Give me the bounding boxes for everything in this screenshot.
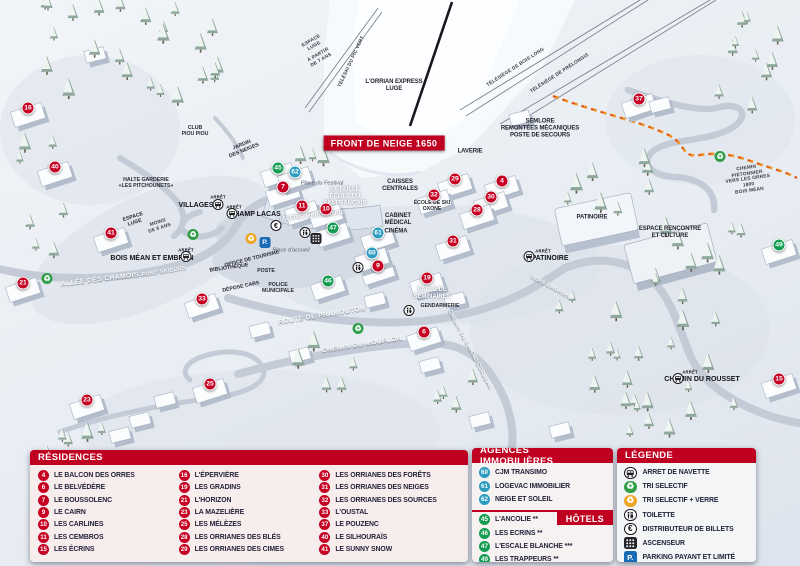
hotels-divider: HÔTELS [472,510,613,512]
number-badge: 7 [38,495,49,506]
item-label: LES ORRIANES DES FORÊTS [335,472,430,479]
map-marker-47: 47 [327,222,340,235]
map-marker-21: 21 [17,277,30,290]
item-label: LE BOUSSOLENC [54,497,112,504]
map-icon: ♻ [715,146,726,164]
map-marker-40: 40 [49,161,62,174]
list-item: 15LES ÉCRINS [38,544,179,556]
map-icon [673,370,684,388]
number-badge: 28 [179,532,190,543]
recycle-green-icon: ♻ [42,273,53,284]
number-badge: 62 [479,494,490,505]
legend-label: TRI SELECTIF [643,483,688,490]
recycle-green-icon: ♻ [353,323,364,334]
number-badge: 61 [479,481,490,492]
item-label: LA MAZELIÈRE [195,509,244,516]
map-marker-60: 60 [366,247,379,260]
legend-label: ARRET DE NAVETTE [643,469,710,476]
list-item: 31LES ORRIANES DES NEIGES [319,481,460,493]
item-label: LES ORRIANES DES NEIGES [335,484,428,491]
list-item: 40LE SILHOURAÏS [319,531,460,543]
parking-icon: P. [624,551,637,562]
number-badge: 60 [479,467,490,478]
recycle-green-icon: ♻ [715,151,726,162]
item-label: L'HORIZON [195,497,232,504]
legend-item: P.PARKING PAYANT ET LIMITÉ [624,551,749,562]
map-marker-6: 6 [418,326,431,339]
bus-icon [524,251,535,262]
front-de-neige-banner: FRONT DE NEIGE 1650 [324,136,445,151]
map-icon: € [271,215,282,233]
legende-header: LÉGENDE [617,448,756,463]
map-icon: ♻ [188,224,199,242]
legende-title: LÉGENDE [625,450,673,461]
map-marker-61: 61 [372,227,385,240]
legende-list: ARRET DE NAVETTE♻TRI SELECTIF♻TRI SELECT… [617,463,756,562]
item-label: LE SUNNY SNOW [335,546,392,553]
number-badge: 15 [38,544,49,555]
item-label: LE CAIRN [54,509,86,516]
agences-header: AGENCES IMMOBILIÈRES [472,448,613,463]
list-item: 37LE POUZENC [319,519,460,531]
list-item: 19LES GRADINS [179,481,320,493]
number-badge: 47 [479,541,490,552]
item-label: LOGEVAC IMMOBILIER [495,483,570,490]
number-badge: 33 [319,507,330,518]
map-icon [227,205,238,223]
list-item: 7LE BOUSSOLENC [38,494,179,506]
number-badge: 19 [179,482,190,493]
parking-icon: P. [260,237,271,248]
map-icon [353,259,364,277]
item-label: LES ÉCRINS [54,546,94,553]
list-item: 47L'ESCALE BLANCHE *** [479,541,606,552]
item-label: LES ECRINS ** [495,530,542,537]
item-label: L'OUSTAL [335,509,368,516]
list-item: 62NEIGE ET SOLEIL [479,494,606,505]
number-badge: 25 [179,519,190,530]
map-icon: ♻ [353,318,364,336]
map-icon [181,248,192,266]
recycle-glass-icon: ♻ [246,233,257,244]
item-label: LES ORRIANES DES CIMES [195,546,284,553]
residences-header: RÉSIDENCES [30,450,468,465]
map-marker-31: 31 [447,235,460,248]
item-label: LE SILHOURAÏS [335,534,387,541]
map-marker-23: 23 [81,394,94,407]
map-icon: P. [260,231,271,249]
euro-icon: € [624,523,637,536]
map-marker-29: 29 [449,173,462,186]
map-icon: ♻ [42,268,53,286]
legend-item: TOILETTE [624,509,749,522]
legend-item: €DISTRIBUTEUR DE BILLETS [624,523,749,536]
legend-label: TRI SELECTIF + VERRE [643,497,719,504]
toilet-icon [353,262,364,273]
list-item: 41LE SUNNY SNOW [319,544,460,556]
legend-label: PARKING PAYANT ET LIMITÉ [643,554,736,561]
number-badge: 11 [38,532,49,543]
recycle-green-icon: ♻ [188,229,199,240]
map-marker-15: 15 [773,373,786,386]
list-item: 32LES ORRIANES DES SOURCES [319,494,460,506]
bus-icon [213,199,224,210]
map-marker-16: 16 [22,102,35,115]
agences-list: 60CJM TRANSIMO61LOGEVAC IMMOBILIER62NEIG… [472,463,613,507]
number-badge: 41 [319,544,330,555]
item-label: LES MÉLÈZES [195,521,242,528]
list-item: 4LE BALCON DES ORRES [38,469,179,481]
recycle-glass-icon: ♻ [624,495,637,508]
legend-label: ASCENSEUR [643,540,685,547]
list-item: 29LES ORRIANES DES CIMES [179,544,320,556]
elevator-icon [311,233,322,244]
residences-panel: RÉSIDENCES 4LE BALCON DES ORRES6LE BELVÉ… [30,450,468,562]
item-label: CJM TRANSIMO [495,469,547,476]
residences-list: 4LE BALCON DES ORRES6LE BELVÉDÈRE7LE BOU… [30,465,468,562]
legend-item: ARRET DE NAVETTE [624,467,749,480]
number-badge: 30 [319,470,330,481]
item-label: LE POUZENC [335,521,378,528]
item-label: L'ÉPERVIÈRE [195,472,239,479]
toilet-icon [624,509,637,522]
map-marker-32: 32 [428,189,441,202]
number-badge: 16 [179,470,190,481]
legend-item: ♻TRI SELECTIF + VERRE [624,495,749,508]
map-marker-33: 33 [196,293,209,306]
map-marker-28: 28 [471,204,484,217]
list-item: 23LA MAZELIÈRE [179,506,320,518]
list-item: 9LE CAIRN [38,506,179,518]
item-label: NEIGE ET SOLEIL [495,496,552,503]
item-label: LES CEMBROS [54,534,103,541]
recycle-green-icon: ♻ [624,481,637,494]
elevator-icon [624,537,637,550]
list-item: 10LES CARLINES [38,519,179,531]
map-marker-45: 45 [272,162,285,175]
number-badge: 4 [38,470,49,481]
legend-item: ♻TRI SELECTIF [624,481,749,494]
list-item: 21L'HORIZON [179,494,320,506]
map-marker-62: 62 [289,166,302,179]
number-badge: 37 [319,519,330,530]
number-badge: 46 [479,528,490,539]
map-marker-10: 10 [320,203,333,216]
map-icon [404,302,415,320]
map-marker-11: 11 [296,200,309,213]
item-label: LES GRADINS [195,484,241,491]
list-item: 49LES TRAPPEURS ** [479,554,606,562]
number-badge: 23 [179,507,190,518]
item-label: L'ANCOLIE ** [495,516,538,523]
legende-panel: LÉGENDE ARRET DE NAVETTE♻TRI SELECTIF♻TR… [617,448,756,562]
map-marker-19: 19 [421,272,434,285]
item-label: LE BELVÉDÈRE [54,484,105,491]
bus-icon [673,373,684,384]
number-badge: 6 [38,482,49,493]
map-marker-30: 30 [485,191,498,204]
map-icon [311,231,322,249]
item-label: LE BALCON DES ORRES [54,472,135,479]
map-icon [300,224,311,242]
item-label: LES ORRIANES DES SOURCES [335,497,436,504]
list-item: 11LES CEMBROS [38,531,179,543]
list-item: 16L'ÉPERVIÈRE [179,469,320,481]
map-icon [524,248,535,266]
list-item: 6LE BELVÉDÈRE [38,481,179,493]
resort-map-page: ESPACE LUGEÀ PARTIR DE 7 ANSTÉLÉSKI DU P… [0,0,800,566]
legend-item: ASCENSEUR [624,537,749,550]
number-badge: 49 [479,554,490,562]
item-label: LES CARLINES [54,521,103,528]
number-badge: 21 [179,495,190,506]
number-badge: 32 [319,495,330,506]
map-marker-9: 9 [372,260,385,273]
residences-title: RÉSIDENCES [38,452,103,463]
number-badge: 10 [38,519,49,530]
agences-panel: AGENCES IMMOBILIÈRES 60CJM TRANSIMO61LOG… [472,448,613,562]
map-marker-4: 4 [496,175,509,188]
map-marker-25: 25 [204,378,217,391]
map-marker-37: 37 [633,93,646,106]
number-badge: 9 [38,507,49,518]
list-item: 61LOGEVAC IMMOBILIER [479,481,606,492]
hotels-title: HÔTELS [557,512,613,525]
number-badge: 31 [319,482,330,493]
item-label: LES TRAPPEURS ** [495,556,559,562]
list-item: 30LES ORRIANES DES FORÊTS [319,469,460,481]
list-item: 60CJM TRANSIMO [479,467,606,478]
number-badge: 29 [179,544,190,555]
legend-label: TOILETTE [643,512,675,519]
toilet-icon [404,305,415,316]
list-item: 28LES ORRIANES DES BLÉS [179,531,320,543]
map-marker-7: 7 [277,181,290,194]
list-item: 46LES ECRINS ** [479,528,606,539]
map-marker-41: 41 [105,227,118,240]
item-label: LES ORRIANES DES BLÉS [195,534,281,541]
euro-icon: € [271,220,282,231]
bus-icon [624,467,637,480]
item-label: L'ESCALE BLANCHE *** [495,543,572,550]
map-icon: ♻ [246,228,257,246]
toilet-icon [300,227,311,238]
legend-label: DISTRIBUTEUR DE BILLETS [643,526,734,533]
map-icon [213,196,224,214]
map-marker-49: 49 [773,239,786,252]
bus-icon [227,208,238,219]
number-badge: 40 [319,532,330,543]
list-item: 33L'OUSTAL [319,506,460,518]
bus-icon [181,251,192,262]
number-badge: 45 [479,514,490,525]
list-item: 25LES MÉLÈZES [179,519,320,531]
map-marker-46: 46 [322,275,335,288]
